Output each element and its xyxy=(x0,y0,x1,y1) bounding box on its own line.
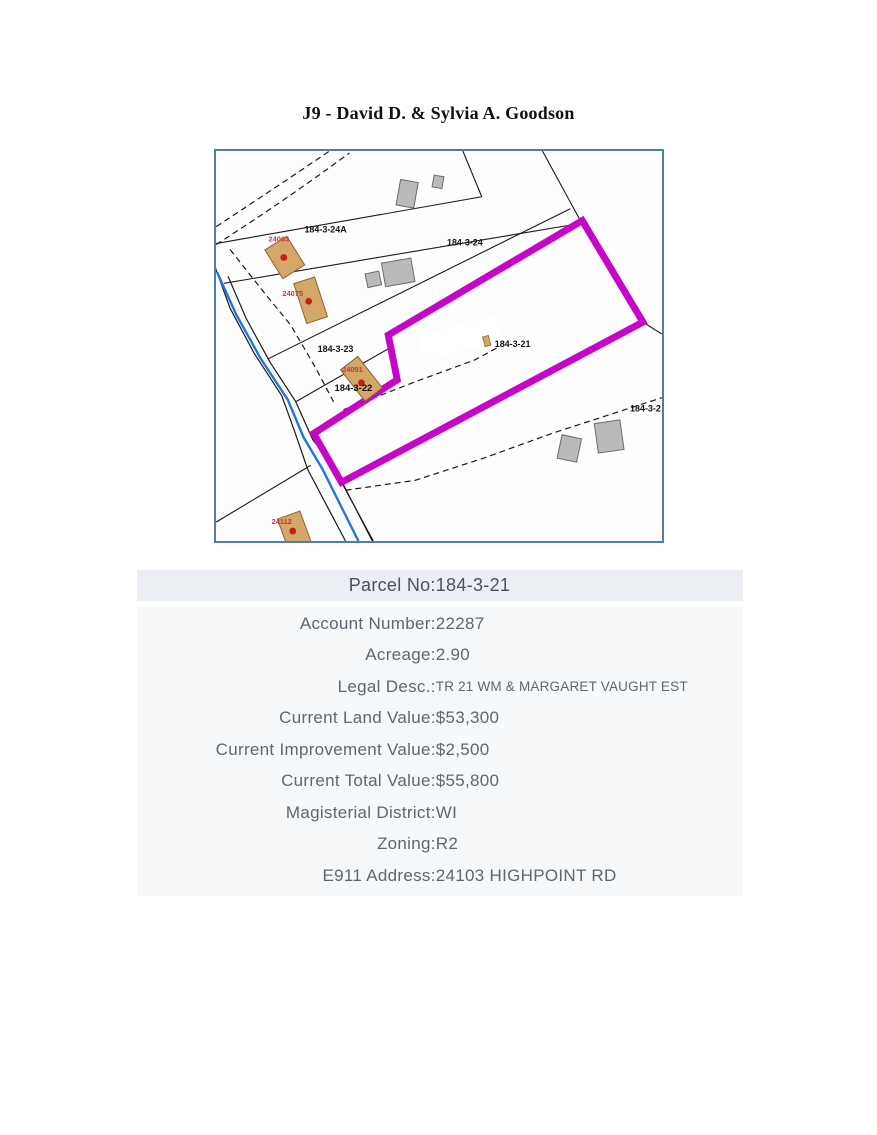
parcel-label-184-3-23: 184-3-23 xyxy=(318,344,354,354)
dot-24063 xyxy=(280,254,287,261)
field-value: 22287 xyxy=(436,614,743,634)
detail-row: Zoning: R2 xyxy=(137,829,743,861)
parcel-details-table: Parcel No: 184-3-21 Account Number: 2228… xyxy=(137,570,743,896)
detail-row: Acreage: 2.90 xyxy=(137,640,743,672)
detail-row: Magisterial District: WI xyxy=(137,797,743,829)
field-value: $53,300 xyxy=(436,708,743,728)
header-value: 184-3-21 xyxy=(436,575,743,596)
details-body: Account Number: 22287 Acreage: 2.90 Lega… xyxy=(137,607,743,896)
field-value: WI xyxy=(436,803,743,823)
detail-row: Current Improvement Value: $2,500 xyxy=(137,734,743,766)
header-label: Parcel No: xyxy=(137,575,436,596)
detail-row: Account Number: 22287 xyxy=(137,608,743,640)
detail-row: Legal Desc.: TR 21 WM & MARGARET VAUGHT … xyxy=(137,671,743,703)
parcel-label-184-3-24A: 184-3-24A xyxy=(304,225,347,235)
address-label-24075: 24075 xyxy=(282,289,303,298)
detail-row: Current Land Value: $53,300 xyxy=(137,703,743,735)
page-title: J9 - David D. & Sylvia A. Goodson xyxy=(0,103,877,124)
parcel-label-184-3-24: 184-3-24 xyxy=(447,238,483,248)
address-label-24063: 24063 xyxy=(268,235,289,244)
field-label: Legal Desc.: xyxy=(137,677,436,697)
address-label-24091: 24091 xyxy=(342,365,363,374)
field-label: Current Improvement Value: xyxy=(137,740,436,760)
field-value: R2 xyxy=(436,834,743,854)
parcel-map: 24063 24075 24091 24112 184-3-24A 184-3-… xyxy=(214,149,664,543)
detail-row: Current Total Value: $55,800 xyxy=(137,766,743,798)
dot-24112 xyxy=(289,528,296,535)
details-header-row: Parcel No: 184-3-21 xyxy=(137,570,743,601)
dot-24075 xyxy=(305,298,312,305)
parcel-label-184-3-22: 184-3-22 xyxy=(335,383,373,394)
field-label: Current Total Value: xyxy=(137,771,436,791)
field-label: Account Number: xyxy=(137,614,436,634)
field-value: 24103 HIGHPOINT RD xyxy=(436,866,743,886)
field-label: E911 Address: xyxy=(137,866,436,886)
field-value: $2,500 xyxy=(436,740,743,760)
address-label-24112: 24112 xyxy=(272,517,292,526)
field-value: TR 21 WM & MARGARET VAUGHT EST xyxy=(436,679,743,694)
field-label: Zoning: xyxy=(137,834,436,854)
field-value: $55,800 xyxy=(436,771,743,791)
parcel-label-184-3-2: 184-3-2 xyxy=(630,404,661,414)
field-value: 2.90 xyxy=(436,645,743,665)
parcel-label-184-3-21: 184-3-21 xyxy=(495,339,531,349)
detail-row: E911 Address: 24103 HIGHPOINT RD xyxy=(137,860,743,892)
field-label: Acreage: xyxy=(137,645,436,665)
field-label: Magisterial District: xyxy=(137,803,436,823)
field-label: Current Land Value: xyxy=(137,708,436,728)
